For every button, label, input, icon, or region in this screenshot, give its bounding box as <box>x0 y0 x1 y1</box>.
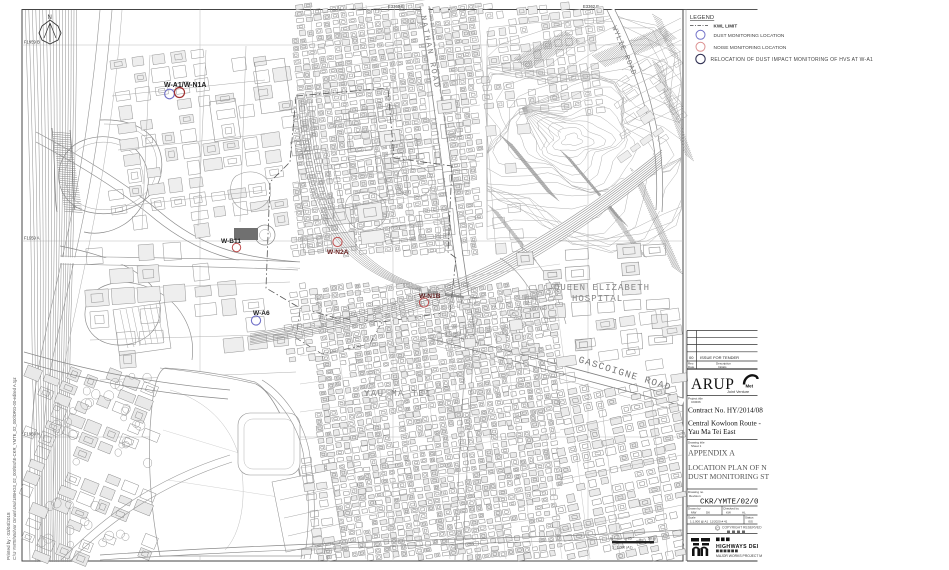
svg-text:Initials: Initials <box>718 365 727 369</box>
svg-text:CKR06: CKR06 <box>691 400 701 404</box>
svg-text:DUST MONITORING ST: DUST MONITORING ST <box>688 472 770 481</box>
svg-text:0: 0 <box>610 537 612 541</box>
svg-text:QUEEN ELIZABETH: QUEEN ELIZABETH <box>554 283 650 293</box>
svg-text:W-N2A: W-N2A <box>327 249 349 256</box>
svg-text:W-N1B: W-N1B <box>419 293 441 300</box>
svg-text:W-A1/W-N1A: W-A1/W-N1A <box>164 82 207 89</box>
svg-text:Date: Date <box>688 365 695 369</box>
svg-text:F1959 A: F1959 A <box>24 236 40 241</box>
svg-text:Yau Ma Tei East: Yau Ma Tei East <box>688 428 736 436</box>
svg-text:Contract No. HY/2014/08: Contract No. HY/2014/08 <box>688 407 763 415</box>
svg-text:C:\U YMTE\WolVor Omars\Uso\1: C:\U YMTE\WolVor Omars\Uso\185HG3_02_000… <box>12 377 17 560</box>
svg-text:11/2020 # 41: 11/2020 # 41 <box>710 520 728 524</box>
svg-text:ISS: ISS <box>748 520 753 524</box>
svg-text:AL: AL <box>742 511 746 515</box>
svg-text:25: 25 <box>628 537 632 541</box>
svg-text:KW: KW <box>726 511 731 515</box>
svg-text:LOCATION PLAN OF N: LOCATION PLAN OF N <box>688 463 767 472</box>
svg-text:Central Kowloon Route -: Central Kowloon Route - <box>688 420 761 428</box>
svg-text:MW: MW <box>691 511 696 515</box>
svg-text:00: 00 <box>689 355 694 360</box>
svg-text:DK: DK <box>706 511 710 515</box>
svg-text:Revision: Revision <box>689 494 701 498</box>
svg-text:CKR/YMTE/02/0: CKR/YMTE/02/0 <box>700 499 759 507</box>
svg-text:RELOCATION OF DUST IMPACT MONI: RELOCATION OF DUST IMPACT MONITORING OF … <box>711 57 874 63</box>
svg-text:LEGEND: LEGEND <box>690 15 714 21</box>
svg-text:1 : 1,000 (A1): 1 : 1,000 (A1) <box>612 546 633 550</box>
svg-text:F1959 N: F1959 N <box>24 432 40 437</box>
svg-text:Printed by : 03/04/2018: Printed by : 03/04/2018 <box>6 512 11 560</box>
svg-text:ISSUE FOR TENDER: ISSUE FOR TENDER <box>700 355 739 360</box>
svg-text:APPENDIX A: APPENDIX A <box>688 449 735 458</box>
svg-text:HIGHWAYS DEI: HIGHWAYS DEI <box>716 544 759 550</box>
svg-text:Joint Venture: Joint Venture <box>727 390 749 394</box>
svg-text:KWL LIMIT: KWL LIMIT <box>714 24 738 29</box>
svg-text:YAU MA TEI: YAU MA TEI <box>364 389 432 399</box>
svg-text:50 m: 50 m <box>648 537 656 541</box>
svg-text:1:1,000 @ A1: 1:1,000 @ A1 <box>690 520 709 524</box>
svg-text:Sheet 1: Sheet 1 <box>691 444 702 448</box>
svg-text:Met: Met <box>746 384 754 389</box>
svg-text:MAJOR WORKS PROJECT M: MAJOR WORKS PROJECT M <box>716 554 762 558</box>
svg-text:NOISE MONITORING LOCATION: NOISE MONITORING LOCATION <box>714 45 787 51</box>
svg-text:HOSPITAL: HOSPITAL <box>572 294 623 304</box>
svg-text:COPYRIGHT RESERVED: COPYRIGHT RESERVED <box>722 526 762 530</box>
svg-text:DUST MONITORING LOCATION: DUST MONITORING LOCATION <box>714 33 785 39</box>
